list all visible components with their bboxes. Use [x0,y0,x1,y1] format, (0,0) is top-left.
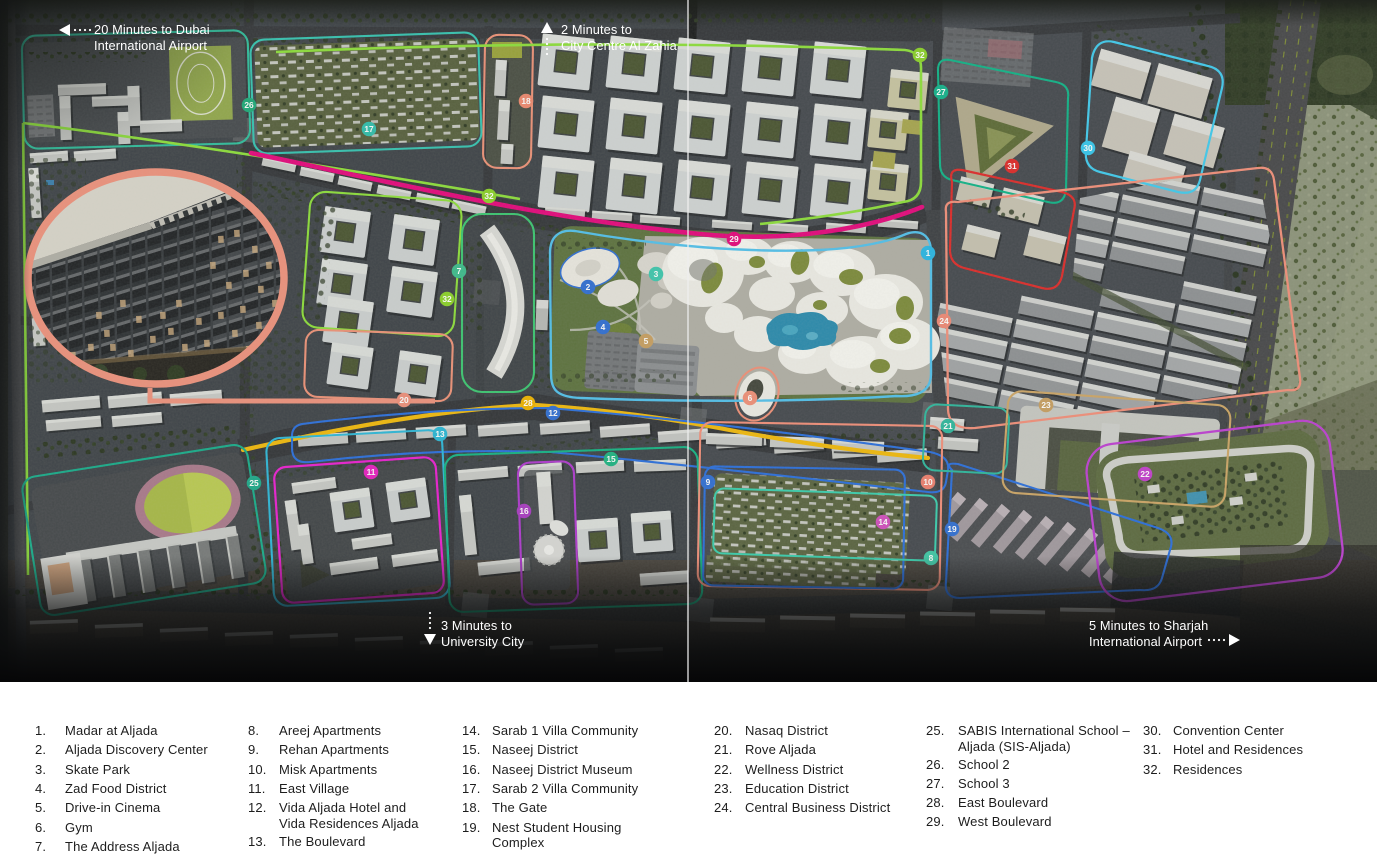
svg-text:3 Minutes to: 3 Minutes to [441,618,512,633]
svg-text:International Airport: International Airport [94,38,207,53]
svg-text:20 Minutes to Dubai: 20 Minutes to Dubai [94,22,210,37]
svg-text:International Airport: International Airport [1089,634,1202,649]
svg-text:2 Minutes to: 2 Minutes to [561,22,632,37]
svg-text:5 Minutes to Sharjah: 5 Minutes to Sharjah [1089,618,1208,633]
svg-text:University City: University City [441,634,525,649]
svg-text:City Centre Al Zahia: City Centre Al Zahia [561,38,678,53]
